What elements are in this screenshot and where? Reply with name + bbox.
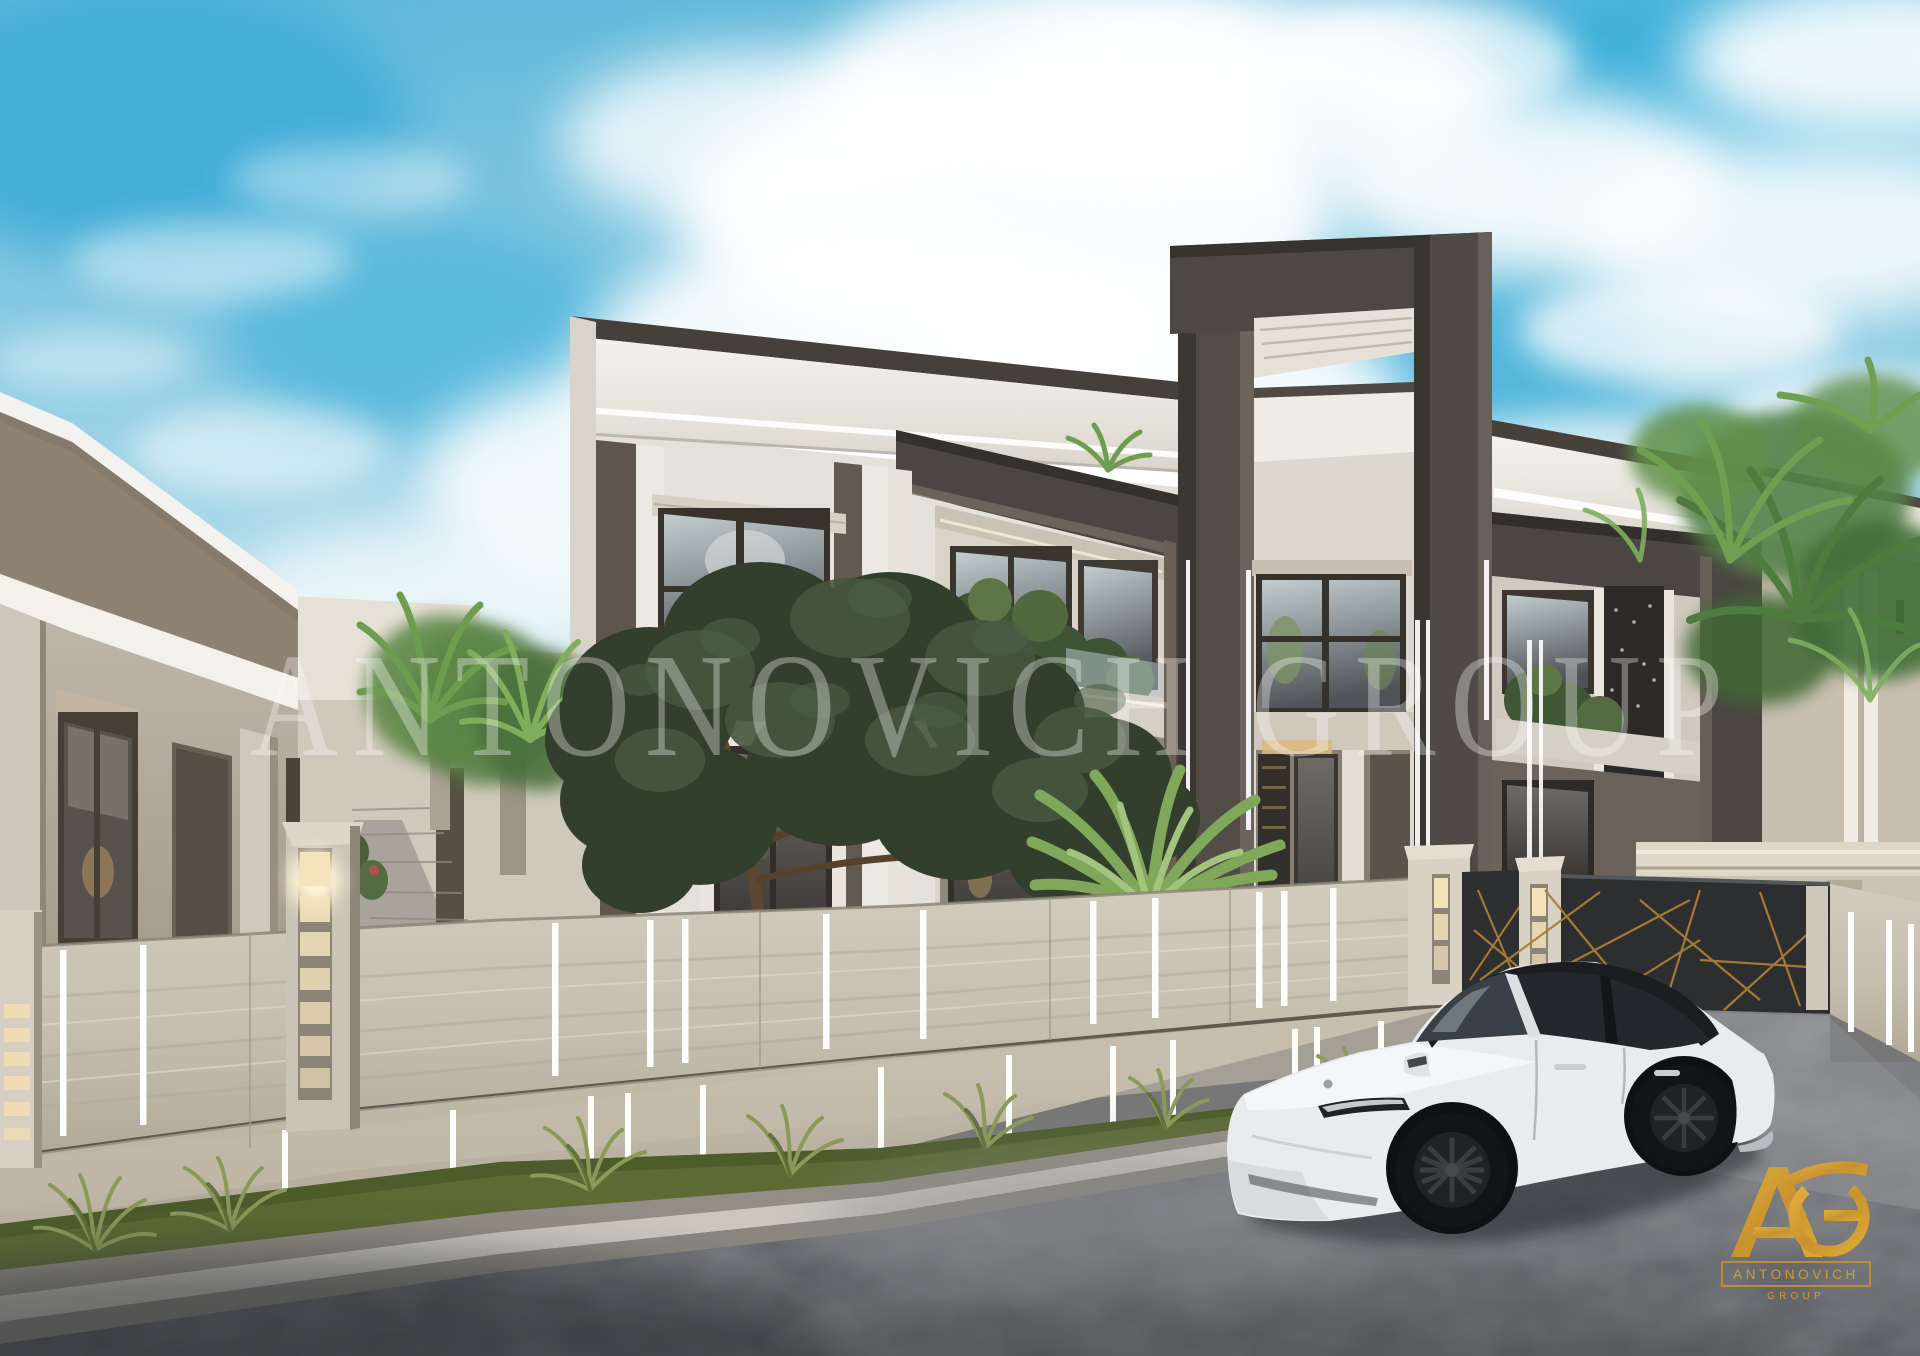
svg-text:ANTONOVICH GROUP: ANTONOVICH GROUP [250, 624, 1738, 788]
svg-text:GROUP: GROUP [1767, 1291, 1825, 1302]
svg-text:ANTONOVICH: ANTONOVICH [1733, 1267, 1859, 1282]
